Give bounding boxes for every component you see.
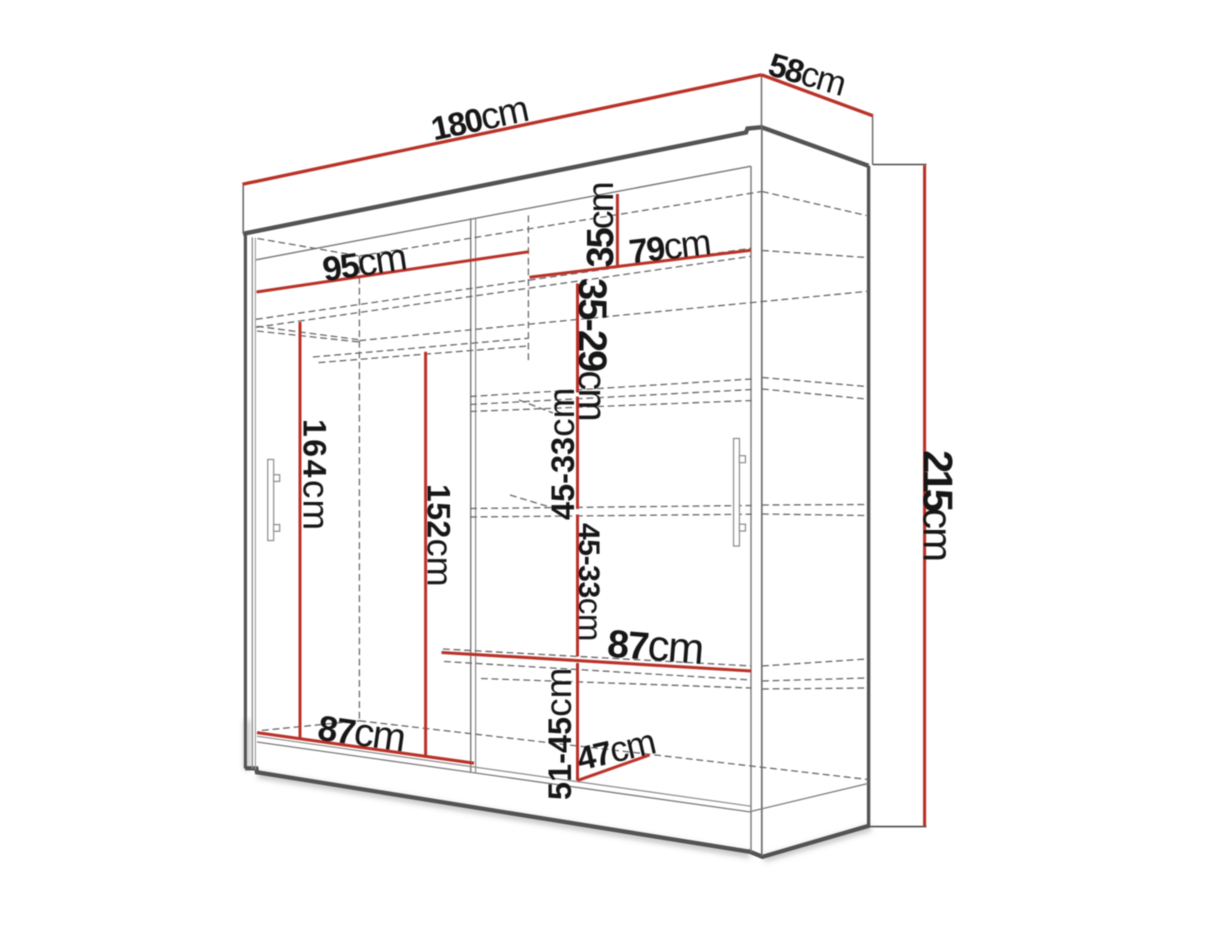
svg-text:45-33cm: 45-33cm: [541, 388, 582, 520]
svg-text:45-33cm: 45-33cm: [572, 523, 609, 641]
svg-text:152cm: 152cm: [420, 484, 461, 587]
svg-text:87cm: 87cm: [606, 619, 705, 674]
svg-text:164cm: 164cm: [296, 419, 337, 531]
svg-text:51-45cm: 51-45cm: [538, 668, 579, 800]
svg-text:35cm: 35cm: [579, 183, 622, 267]
svg-text:215cm: 215cm: [915, 450, 962, 560]
